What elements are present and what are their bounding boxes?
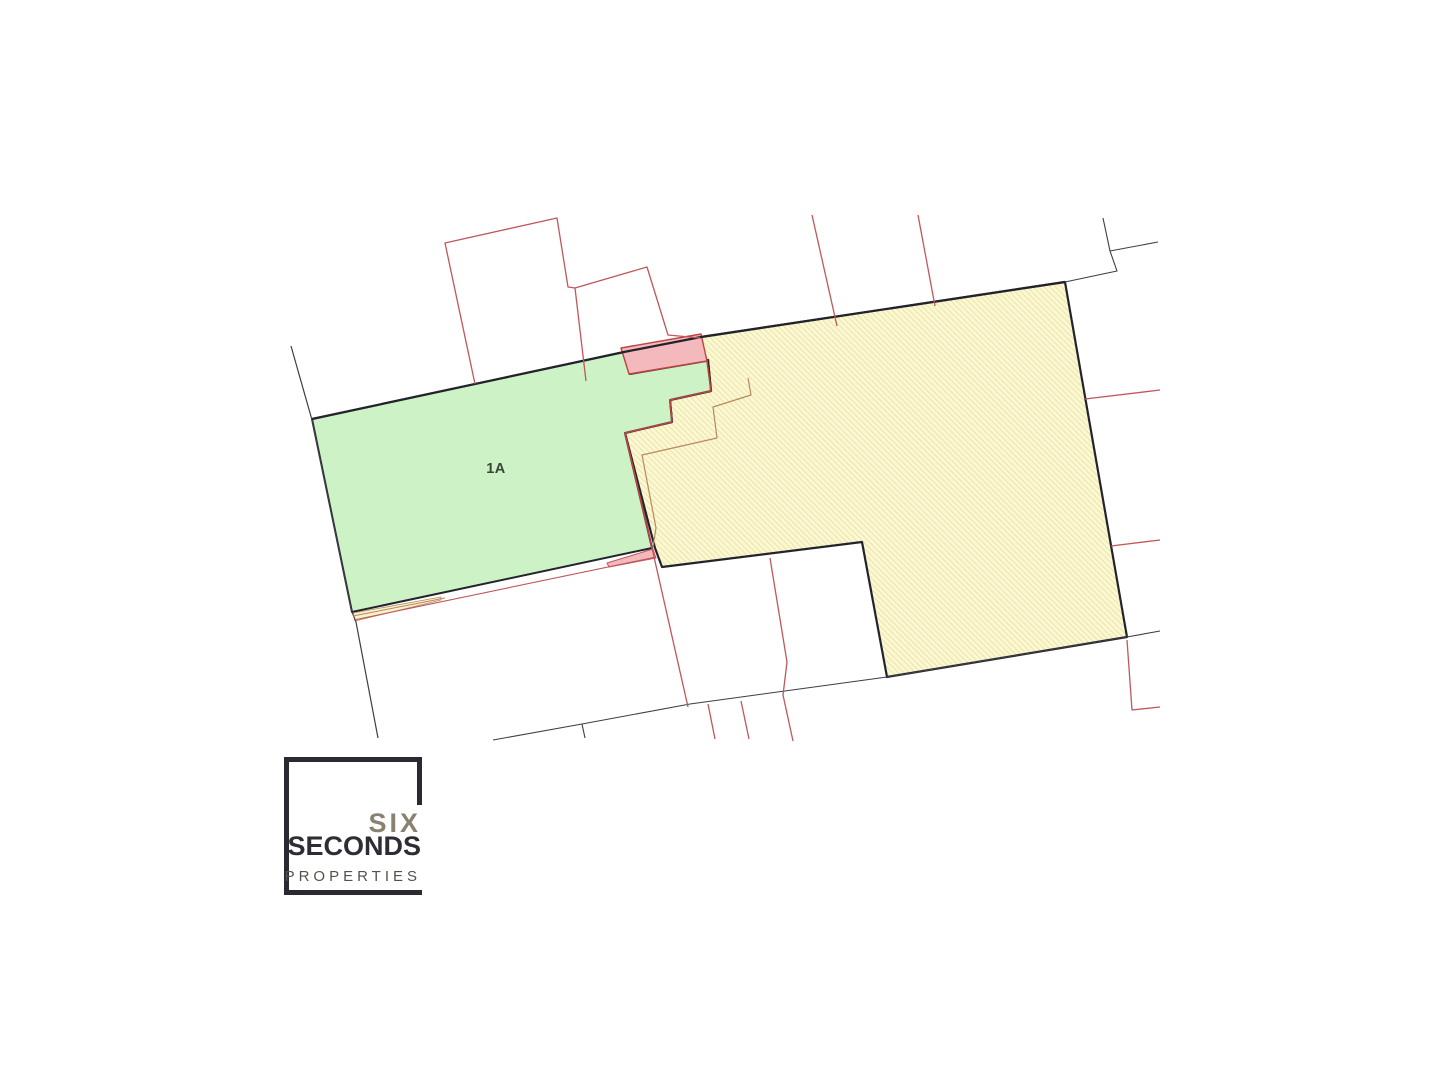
cadastral-plan-map: 1A: [0, 0, 1440, 1080]
red-line-north-2: [918, 215, 935, 306]
road-tick: [582, 724, 585, 738]
red-line-southeast: [1127, 640, 1160, 710]
logo-word-seconds: SECONDS: [287, 833, 421, 860]
red-parcel-northwest-small: [575, 267, 700, 338]
page: 1A SIX SECONDS PROPERTIES: [0, 0, 1440, 1080]
red-line-north-1: [812, 215, 837, 326]
red-line-south-diagonal: [652, 548, 688, 707]
boundary-northeast-road: [1065, 251, 1117, 282]
red-line-east-2: [1111, 540, 1160, 546]
red-stub-south-1: [708, 704, 715, 739]
red-line-center-south: [770, 558, 793, 741]
boundary-northeast-corner: [1103, 218, 1158, 251]
red-stub-south-2: [741, 701, 749, 739]
red-parcel-northwest-large: [445, 218, 586, 384]
logo-word-properties: PROPERTIES: [285, 869, 421, 884]
company-logo: SIX SECONDS PROPERTIES: [284, 757, 422, 895]
parcel-label-1a: 1A: [486, 461, 506, 477]
red-line-east-1: [1085, 390, 1160, 399]
